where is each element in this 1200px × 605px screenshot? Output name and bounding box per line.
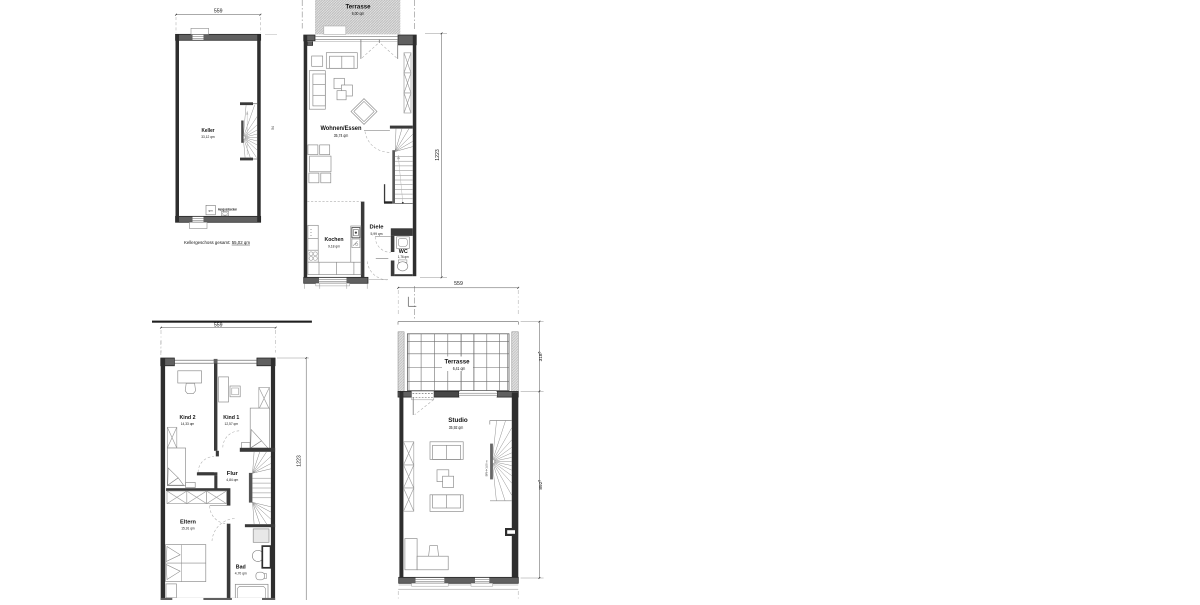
svg-text:35,92 qm: 35,92 qm [449,425,464,430]
svg-text:14,33 qm: 14,33 qm [181,421,195,426]
svg-text:6,41 qm: 6,41 qm [453,366,466,371]
svg-text:1223: 1223 [297,455,303,467]
svg-text:Studio: Studio [448,417,468,424]
svg-text:559: 559 [454,281,463,287]
svg-text:54: 54 [271,126,275,130]
svg-text:Ausgussbecken: Ausgussbecken [218,207,237,211]
svg-text:Terrasse: Terrasse [346,4,372,11]
svg-text:35,74 qm: 35,74 qm [334,133,349,138]
svg-text:Bad: Bad [236,565,247,571]
svg-text:4,84 qm: 4,84 qm [226,477,239,482]
svg-text:15,91 qm: 15,91 qm [181,525,195,530]
svg-text:12,57 qm: 12,57 qm [225,421,239,426]
svg-text:Wohnen/Essen: Wohnen/Essen [321,125,362,132]
svg-text:Flur: Flur [227,471,239,477]
svg-text:Kochen: Kochen [325,237,345,243]
svg-text:1,76 qm: 1,76 qm [398,255,409,259]
svg-text:Kellergeschoss gesamt: 55,02 q: Kellergeschoss gesamt: 55,02 qm [184,240,251,245]
svg-text:6,00 qm: 6,00 qm [352,11,365,16]
svg-text:9,18 qm: 9,18 qm [328,243,341,248]
svg-text:4,70 qm: 4,70 qm [235,571,248,576]
svg-text:qm: qm [209,209,214,213]
svg-text:559: 559 [214,323,223,329]
svg-text:1223: 1223 [435,149,441,161]
svg-text:Keller: Keller [202,128,215,134]
svg-text:Eltern: Eltern [180,519,197,525]
svg-text:5,99 qm: 5,99 qm [371,231,384,236]
svg-text:Kind 2: Kind 2 [180,415,196,421]
svg-text:Kind 1: Kind 1 [223,415,239,421]
svg-text:559: 559 [214,8,223,14]
svg-text:Terrasse: Terrasse [445,359,471,366]
svg-text:Diele: Diele [370,225,384,231]
svg-text:BRH=1,00 m: BRH=1,00 m [485,460,489,477]
svg-text:33,12 qm: 33,12 qm [201,135,215,139]
